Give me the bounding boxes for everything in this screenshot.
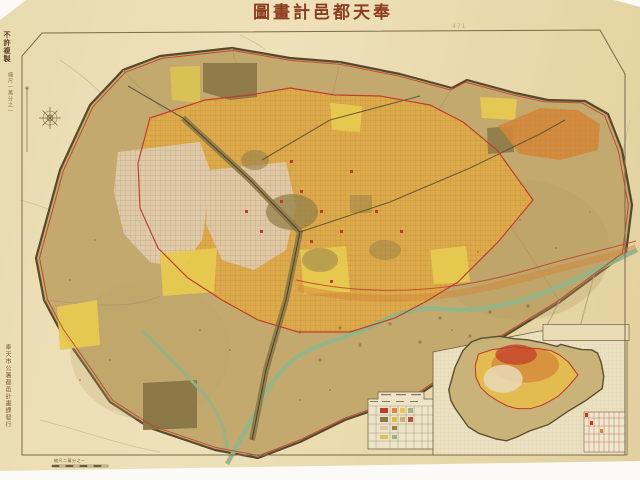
map-graphic	[0, 0, 640, 480]
sheet-mark: 471	[452, 24, 466, 30]
legend-table	[368, 392, 434, 449]
publisher-imprint: 奉天市公署都邑計畫課發行	[4, 344, 10, 428]
scale-bar-label: 縮尺二萬分之一	[54, 459, 86, 463]
scale-bar	[52, 465, 108, 467]
map-photo: 奉天都邑計畫圖 不許複製 縮尺一萬分之一 奉天市公署都邑計畫課發行 471 縮尺…	[0, 0, 640, 480]
inset-legend	[584, 412, 625, 452]
scale-note: 縮尺一萬分之一	[7, 72, 12, 114]
no-reproduction-note: 不許複製	[3, 31, 10, 63]
compass-rose-icon	[39, 107, 61, 129]
map-title: 奉天都邑計畫圖	[238, 5, 408, 29]
yellow-green-patch-north	[170, 66, 200, 103]
meridian-line	[26, 87, 28, 152]
inset-label-box	[543, 325, 629, 341]
